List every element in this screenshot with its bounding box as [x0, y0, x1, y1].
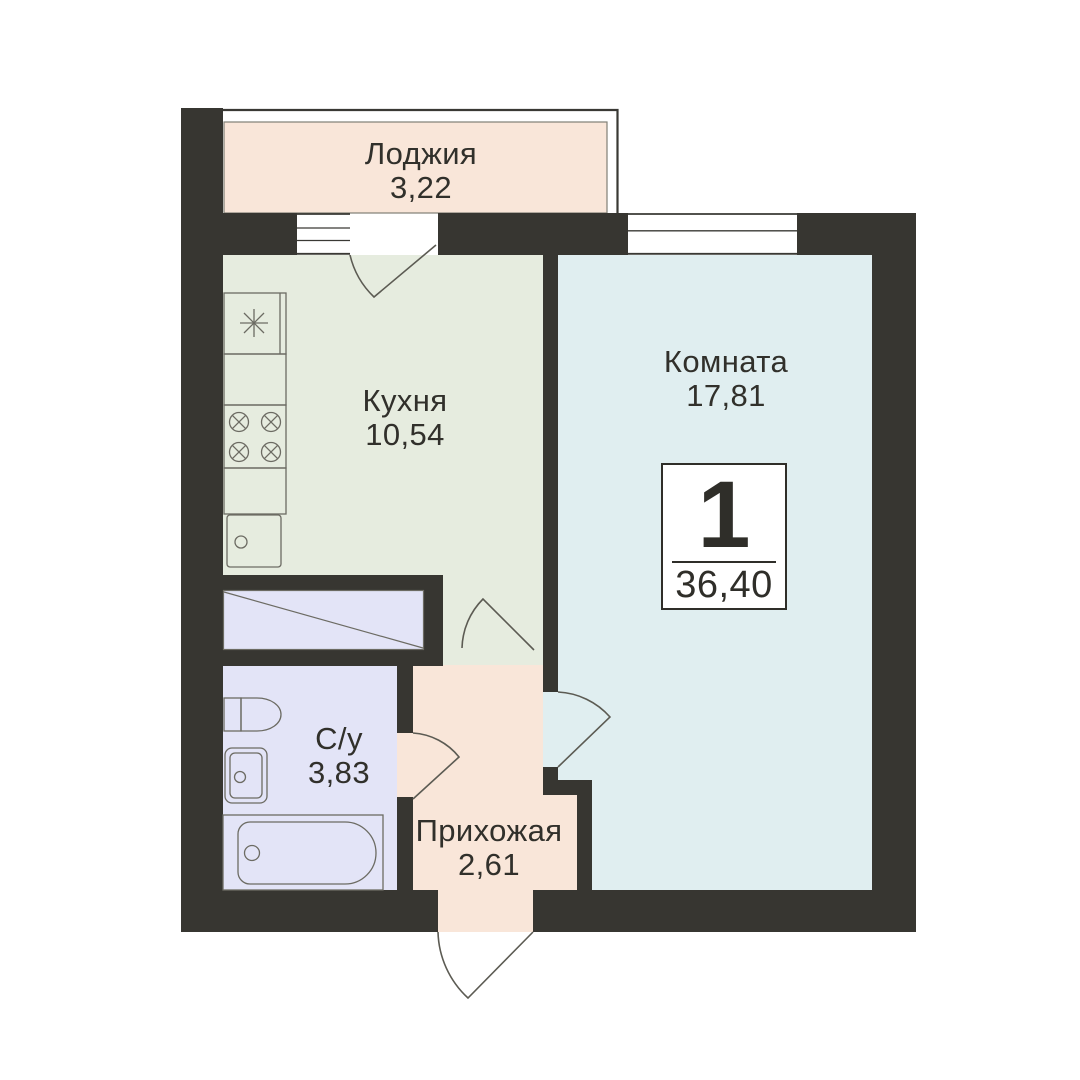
room-area: 17,81: [664, 379, 788, 413]
room-label-loggia: Лоджия 3,22: [365, 137, 477, 205]
room-label-hallway: Прихожая 2,61: [416, 814, 563, 882]
room-name: Кухня: [363, 384, 448, 418]
wall-bathroom-right-upper: [397, 666, 413, 733]
room-area: 2,61: [416, 848, 563, 882]
wall-top-2: [438, 213, 628, 255]
wall-bathroom-right-lower: [397, 797, 413, 890]
room-area: 3,83: [308, 756, 370, 790]
room-name: Прихожая: [416, 814, 563, 848]
room-area: 10,54: [363, 418, 448, 452]
wall-top-1: [223, 213, 297, 255]
wall-kitchen-bottom: [223, 575, 443, 590]
bathroom-door-opening: [397, 733, 413, 797]
room-label-bathroom: С/у 3,83: [308, 722, 370, 790]
room-window: [628, 214, 797, 254]
wall-wardrobe-bottom: [223, 650, 443, 666]
floor-plan: Лоджия 3,22 Кухня 10,54 Комната 17,81 С/…: [0, 0, 1080, 1080]
entrance-door-arc: [438, 932, 533, 998]
room-label-room: Комната 17,81: [664, 345, 788, 413]
room-area: 3,22: [365, 171, 477, 205]
kitchen-window: [297, 214, 350, 254]
room-name: Лоджия: [365, 137, 477, 171]
wardrobe-icon: [224, 591, 424, 650]
wall-left: [181, 108, 223, 932]
badge-room-count: 1: [698, 465, 751, 561]
floor-plan-svg: [0, 0, 1080, 1080]
room-name: С/у: [308, 722, 370, 756]
wall-kitchen-room: [543, 255, 558, 692]
wall-bottom-right: [533, 890, 916, 932]
wall-bottom-left: [181, 890, 438, 932]
apartment-badge: 1 36,40: [661, 463, 787, 610]
room-fill-entrance: [438, 888, 533, 932]
room-label-kitchen: Кухня 10,54: [363, 384, 448, 452]
wall-hall-room: [577, 795, 592, 890]
wall-right: [872, 213, 916, 932]
wall-jog-horizontal: [543, 780, 592, 795]
badge-total-area: 36,40: [675, 563, 773, 608]
room-name: Комната: [664, 345, 788, 379]
